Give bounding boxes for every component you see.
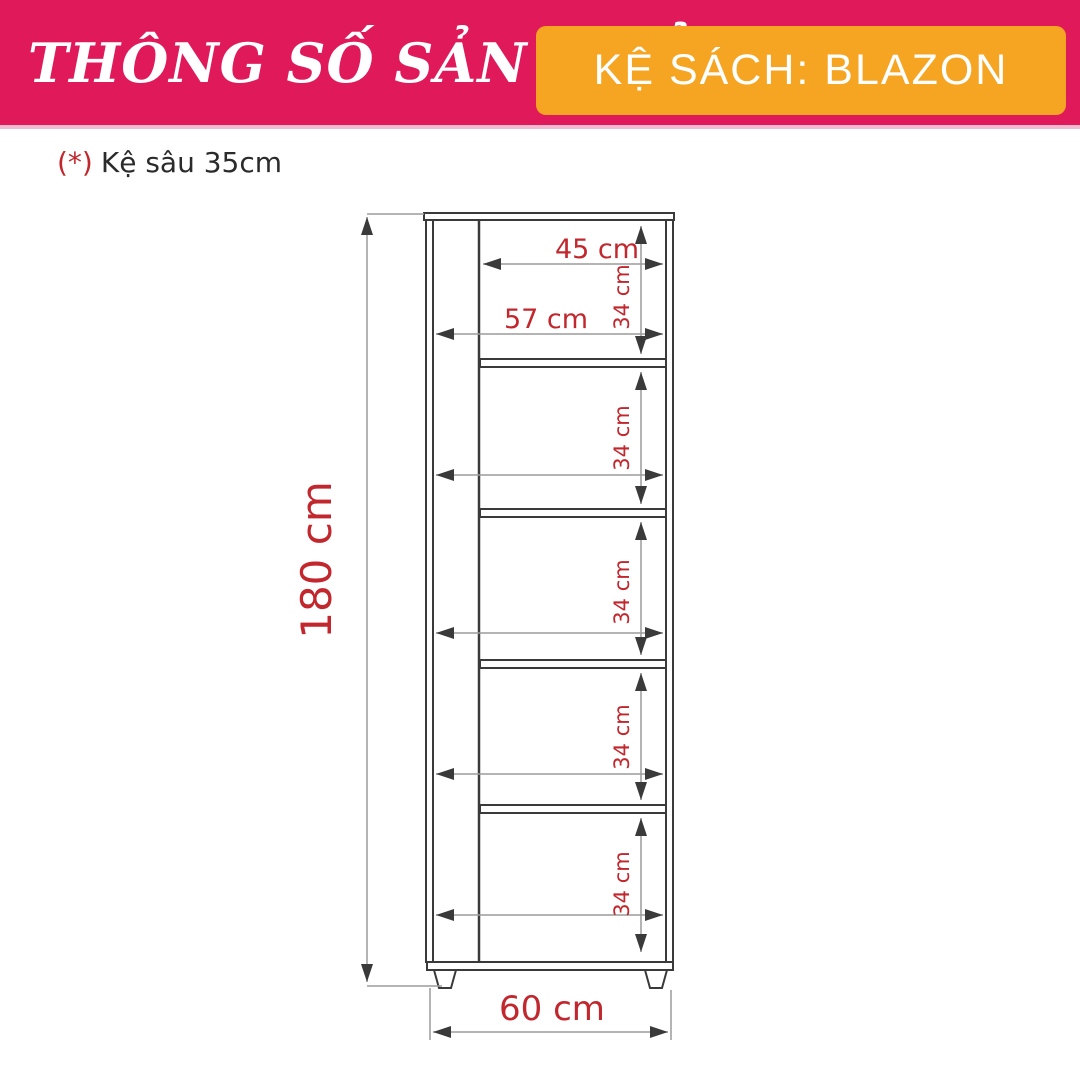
dim-label-top-inner-width: 45 cm <box>555 234 639 265</box>
cabinet-bottom-panel <box>427 962 673 970</box>
cabinet-left-panel <box>426 220 433 962</box>
cabinet-shelf-1 <box>480 359 666 367</box>
cabinet-shelf-3 <box>480 660 666 668</box>
cabinet-leg-right <box>645 970 667 988</box>
dim-label-shelf-2: 34 cm <box>610 405 634 470</box>
dim-label-shelf-1: 34 cm <box>610 264 634 329</box>
dim-label-shelf-3: 34 cm <box>610 559 634 624</box>
cabinet-shelf-4 <box>480 805 666 813</box>
dim-label-shelf-5: 34 cm <box>610 851 634 916</box>
cabinet-shelf-2 <box>480 509 666 517</box>
cabinet-right-panel <box>666 220 673 962</box>
dim-label-inner-width: 57 cm <box>504 304 588 335</box>
dim-label-outer-width: 60 cm <box>499 989 605 1029</box>
dim-label-shelf-4: 34 cm <box>610 704 634 769</box>
spec-diagram: 180 cm 45 cm 57 cm 34 cm 34 cm 34 cm 34 … <box>0 0 1080 1080</box>
page: THÔNG SỐ SẢN PHẨM KỆ SÁCH: BLAZON (*)Kệ … <box>0 0 1080 1080</box>
cabinet-top-panel <box>424 213 674 220</box>
dimension-labels: 180 cm 45 cm 57 cm 34 cm 34 cm 34 cm 34 … <box>292 234 639 1029</box>
dim-label-height: 180 cm <box>292 481 341 639</box>
